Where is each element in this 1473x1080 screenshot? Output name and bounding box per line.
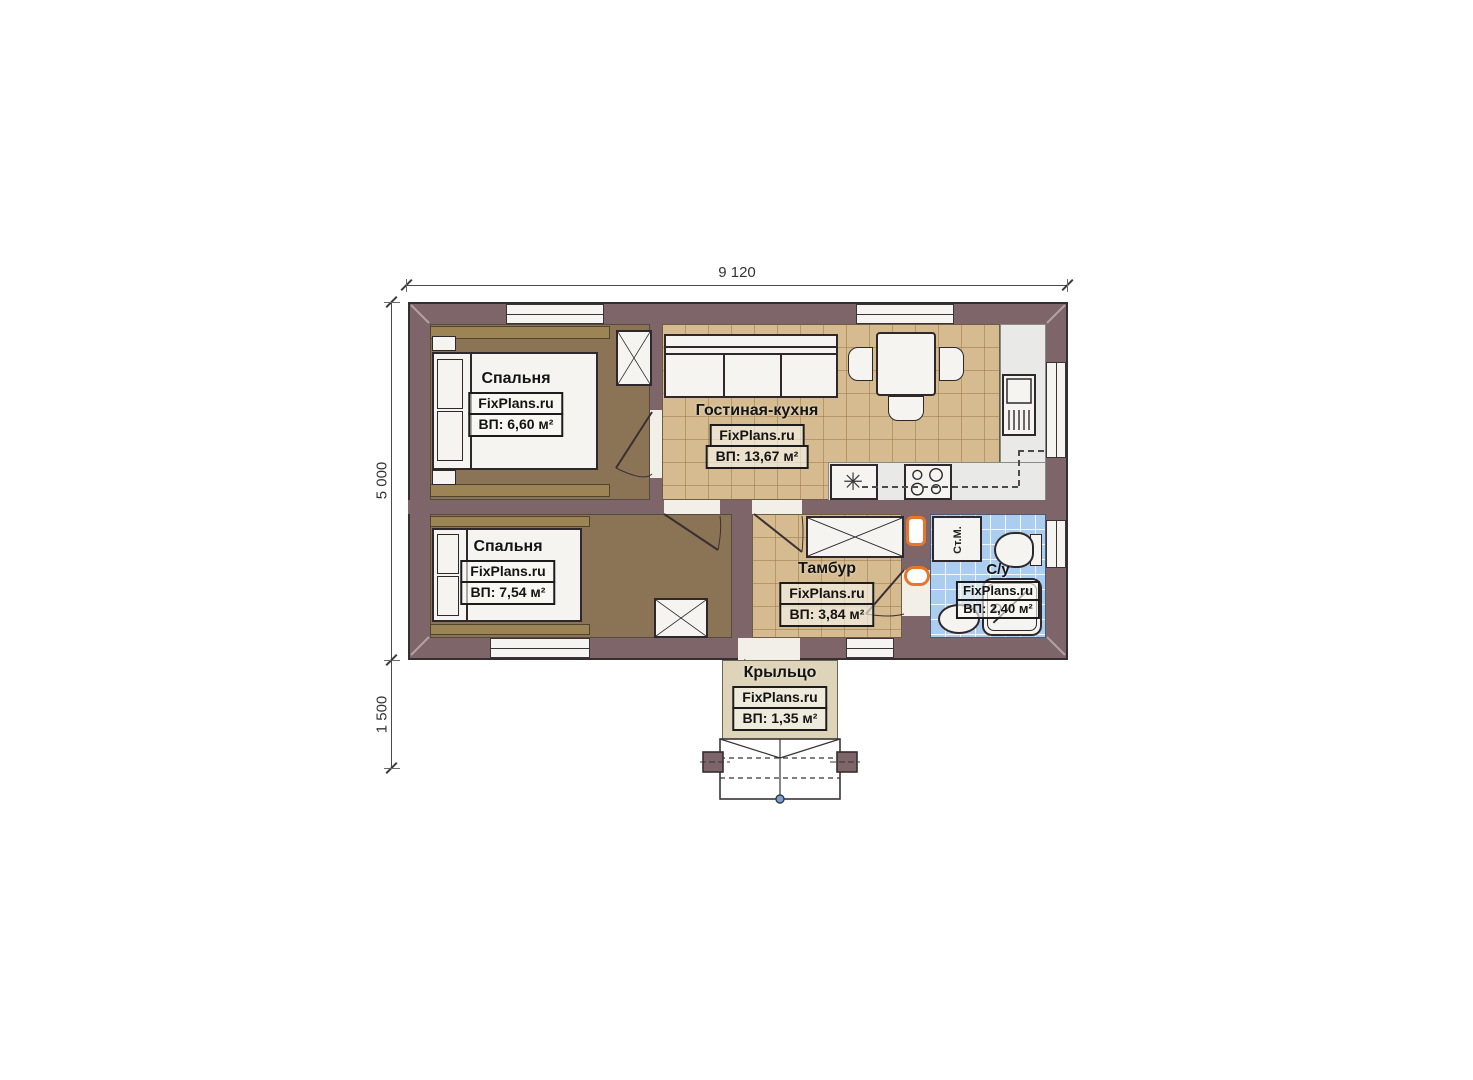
wall-bedroom2-right (732, 514, 752, 638)
extension-line (406, 279, 407, 292)
dimension-line-width (406, 285, 1068, 286)
pillow (437, 534, 459, 574)
bedroom2-door (660, 512, 724, 568)
extension-line (384, 302, 400, 303)
room-name: Спальня (473, 538, 542, 556)
bedroom1-door (610, 404, 658, 484)
wall-middle-band (408, 500, 1046, 514)
upper-cabinet-dash (1018, 450, 1020, 486)
nightstand (432, 336, 456, 351)
room-label-bedroom1: Спальня FixPlans.ru ВП: 6,60 м² (468, 370, 563, 437)
area-label: ВП: 7,54 м² (461, 581, 556, 605)
extension-line (384, 660, 400, 661)
window-right-bathroom (1046, 520, 1066, 568)
chair (939, 347, 964, 381)
wardrobe-icon (806, 516, 904, 558)
pillow (437, 359, 463, 409)
chair (848, 347, 873, 381)
corner-mark (1046, 304, 1066, 324)
room-name: Тамбур (798, 560, 856, 578)
area-label: ВП: 13,67 м² (706, 445, 809, 469)
towel-dryer-icon (904, 566, 930, 586)
brand-label: FixPlans.ru (956, 581, 1040, 601)
window-top-bedroom1 (506, 304, 604, 324)
room-name: Спальня (481, 370, 550, 388)
area-label: ВП: 1,35 м² (733, 707, 828, 731)
washing-machine-label: Ст.М. (952, 526, 964, 554)
chair (888, 396, 924, 421)
stove (904, 464, 952, 500)
pillow (437, 576, 459, 616)
extension-line (1067, 279, 1068, 292)
dimension-width-label: 9 120 (707, 264, 767, 281)
living-tambour-door (750, 512, 806, 558)
wardrobe-icon (616, 330, 652, 386)
sofa (664, 334, 838, 398)
room-name: С/у (986, 562, 1009, 579)
nightstand (432, 470, 456, 485)
extension-line (384, 768, 400, 769)
dimension-line-porch (391, 660, 392, 768)
room-label-porch: Крыльцо FixPlans.ru ВП: 1,35 м² (732, 664, 827, 731)
kitchen-sink (1002, 374, 1036, 436)
bedroom2-shelf-bottom (430, 624, 590, 635)
brand-label: FixPlans.ru (779, 582, 874, 606)
room-label-bathroom: С/у FixPlans.ru ВП: 2,40 м² (956, 562, 1040, 619)
room-name: Крыльцо (744, 664, 817, 682)
fridge: ✳ (830, 464, 878, 500)
porch-steps (700, 736, 860, 808)
room-label-living-kitchen: Гостиная-кухня FixPlans.ru ВП: 13,67 м² (696, 402, 819, 469)
wardrobe-icon (654, 598, 708, 638)
dimension-height-label: 5 000 (374, 451, 391, 511)
corner-mark (410, 636, 430, 656)
floor-plan-canvas: 9 120 5 000 1 500 (0, 0, 1473, 1080)
corner-mark (1046, 636, 1066, 656)
window-bottom-bedroom2 (490, 638, 590, 658)
brand-label: FixPlans.ru (709, 424, 804, 448)
washing-machine: Ст.М. (932, 516, 982, 562)
area-label: ВП: 2,40 м² (956, 599, 1040, 619)
bedroom2-shelf-top (430, 516, 590, 527)
dimension-line-height (391, 302, 392, 660)
area-label: ВП: 3,84 м² (780, 603, 875, 627)
bedroom1-shelf-top (430, 326, 610, 339)
area-label: ВП: 6,60 м² (469, 413, 564, 437)
brand-label: FixPlans.ru (468, 392, 563, 416)
dimension-porch-label: 1 500 (374, 685, 391, 745)
room-label-bedroom2: Спальня FixPlans.ru ВП: 7,54 м² (460, 538, 555, 605)
pillow (437, 411, 463, 461)
room-label-tambour: Тамбур FixPlans.ru ВП: 3,84 м² (779, 560, 874, 627)
dining-table (876, 332, 936, 396)
upper-cabinet-dash (862, 486, 1018, 488)
boiler-icon (906, 516, 926, 546)
brand-label: FixPlans.ru (732, 686, 827, 710)
brand-label: FixPlans.ru (460, 560, 555, 584)
window-bottom-tambour (846, 638, 894, 658)
window-right-kitchen (1046, 362, 1066, 458)
room-name: Гостиная-кухня (696, 402, 819, 420)
fridge-symbol-icon: ✳ (843, 471, 863, 495)
corner-mark (410, 304, 430, 324)
window-top-living (856, 304, 954, 324)
bedroom1-shelf-bottom (430, 484, 610, 497)
upper-cabinet-dash (1018, 450, 1044, 452)
